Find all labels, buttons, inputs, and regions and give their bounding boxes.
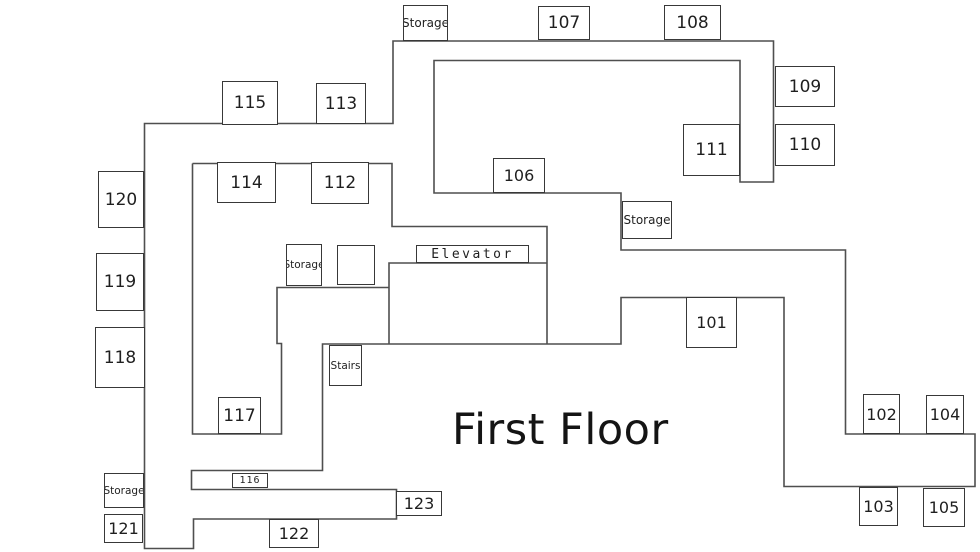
room-label: 112	[324, 173, 356, 193]
room-label: 113	[325, 94, 357, 114]
room-112: 112	[311, 162, 369, 204]
elevator: Elevator	[416, 245, 529, 263]
room-122: 122	[269, 519, 319, 548]
room-123: 123	[396, 491, 442, 516]
room-118: 118	[95, 327, 145, 388]
room-label: 109	[789, 77, 821, 97]
room-label: 123	[404, 494, 435, 513]
room-120: 120	[98, 171, 144, 228]
room-label: Elevator	[431, 247, 514, 262]
room-label: 119	[104, 272, 136, 292]
room-label: Storage	[403, 16, 448, 30]
room-label: Storage	[286, 259, 322, 271]
room-label: 108	[676, 13, 708, 33]
room-104: 104	[926, 395, 964, 434]
storage-east: Storage	[622, 201, 672, 239]
room-111: 111	[683, 124, 740, 176]
room-label: 111	[695, 140, 727, 160]
room-label: Stairs	[331, 360, 361, 372]
room-label: 117	[223, 406, 255, 426]
floorplan-canvas: Storage107108109110111115113114112106Sto…	[0, 0, 980, 552]
room-label: 118	[104, 348, 136, 368]
storage-west: Storage	[104, 473, 144, 508]
utility-box	[337, 245, 375, 285]
room-label: Storage	[624, 213, 671, 227]
storage-center: Storage	[286, 244, 322, 286]
room-label: 103	[863, 497, 894, 516]
stairs: Stairs	[329, 345, 362, 386]
room-label: 122	[279, 524, 310, 543]
room-label: 116	[239, 475, 260, 486]
room-label: 121	[108, 519, 139, 538]
room-102: 102	[863, 394, 900, 434]
room-116: 116	[232, 473, 268, 488]
room-label: 110	[789, 135, 821, 155]
room-label: 114	[230, 173, 262, 193]
room-119: 119	[96, 253, 144, 311]
room-label: 107	[548, 13, 580, 33]
room-106: 106	[493, 158, 545, 193]
room-113: 113	[316, 83, 366, 124]
room-114: 114	[217, 162, 276, 203]
floor-title: First Floor	[452, 405, 669, 455]
room-label: 120	[105, 190, 137, 210]
rooms-layer: Storage107108109110111115113114112106Sto…	[0, 0, 980, 552]
storage-north: Storage	[403, 5, 448, 41]
room-105: 105	[923, 488, 965, 527]
room-label: 104	[930, 405, 961, 424]
room-label: 101	[696, 313, 727, 332]
room-115: 115	[222, 81, 278, 125]
room-label: 115	[234, 93, 266, 113]
room-117: 117	[218, 397, 261, 434]
room-label: Storage	[104, 485, 144, 497]
room-label: 106	[504, 166, 535, 185]
room-109: 109	[775, 66, 835, 107]
room-108: 108	[664, 5, 721, 40]
room-110: 110	[775, 124, 835, 166]
room-103: 103	[859, 487, 898, 526]
room-label: 102	[866, 405, 897, 424]
room-101: 101	[686, 297, 737, 348]
room-121: 121	[104, 514, 143, 543]
room-label: 105	[929, 498, 960, 517]
room-107: 107	[538, 6, 590, 40]
